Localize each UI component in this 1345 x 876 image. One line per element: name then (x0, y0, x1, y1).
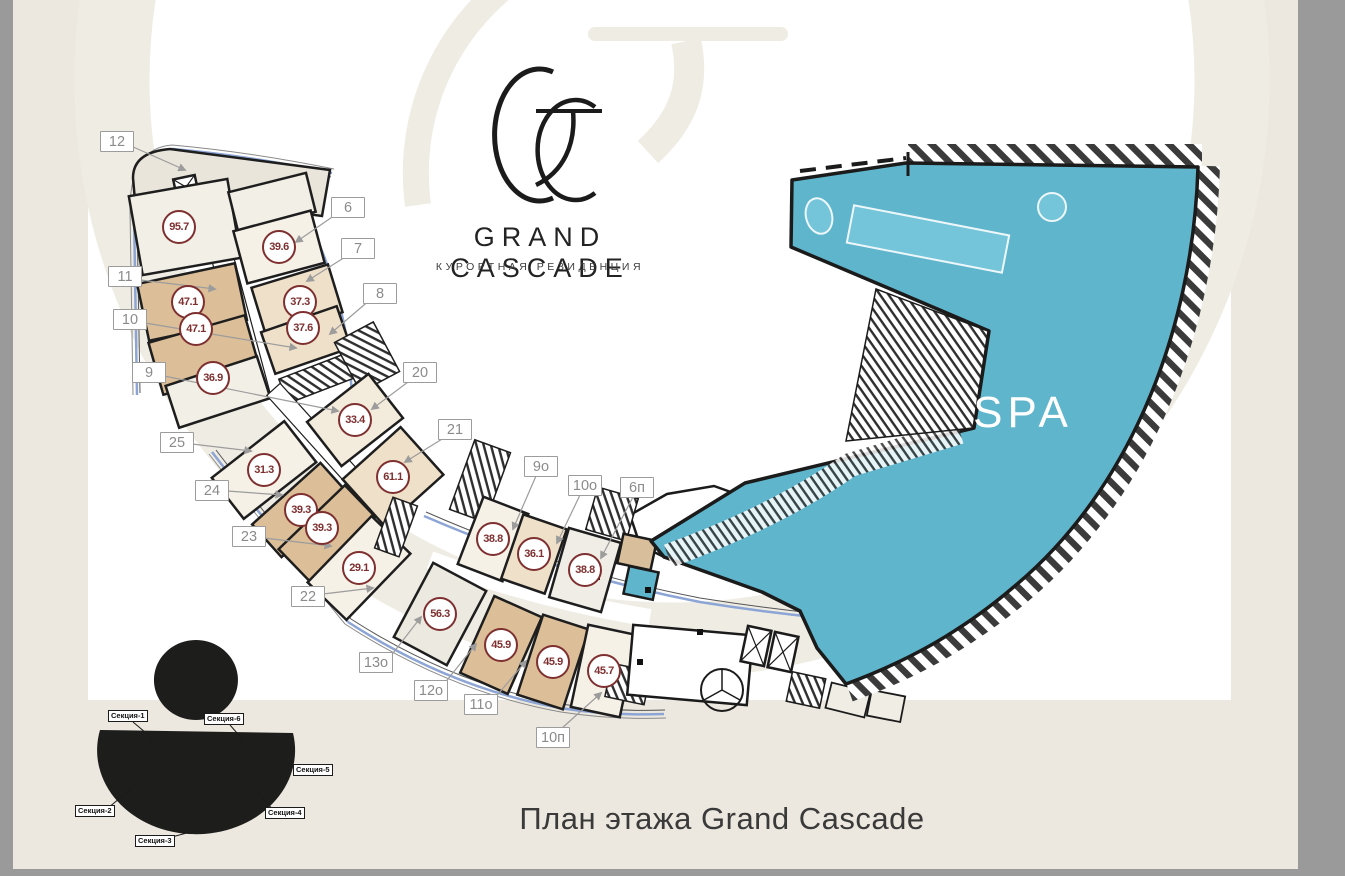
section-callout[interactable]: 21 (438, 419, 472, 440)
spa-tub-round (1038, 193, 1066, 221)
minimap-section-label[interactable]: Секция-6 (204, 713, 244, 725)
minimap-section-label[interactable]: Секция-3 (135, 835, 175, 847)
unit-area-badge[interactable]: 45.9 (484, 628, 518, 662)
minimap-section-label[interactable]: Секция-2 (75, 805, 115, 817)
section-callout[interactable]: 13о (359, 652, 393, 673)
unit-area-badge[interactable]: 39.6 (262, 230, 296, 264)
unit-area-badge[interactable]: 31.3 (247, 453, 281, 487)
unit-area-badge[interactable]: 45.9 (536, 645, 570, 679)
unit-area-badge[interactable]: 29.1 (342, 551, 376, 585)
section-callout[interactable]: 9 (132, 362, 166, 383)
section-callout[interactable]: 12о (414, 680, 448, 701)
minimap-section-label[interactable]: Секция-4 (265, 807, 305, 819)
section-callout[interactable]: 7 (341, 238, 375, 259)
unit-area-badge[interactable]: 47.1 (179, 312, 213, 346)
section-callout[interactable]: 25 (160, 432, 194, 453)
section-callout[interactable]: 8 (363, 283, 397, 304)
section-callout[interactable]: 10 (113, 309, 147, 330)
floorplan-page: GRAND CASCADE КУРОРТНАЯ РЕЗИДЕНЦИЯ SPA П… (0, 0, 1345, 876)
unit-area-badge[interactable]: 33.4 (338, 403, 372, 437)
unit-area-badge[interactable]: 39.3 (305, 511, 339, 545)
unit-area-badge[interactable]: 45.7 (587, 654, 621, 688)
unit-area-badge[interactable]: 38.8 (568, 553, 602, 587)
page-title: План этажа Grand Cascade (222, 801, 1222, 837)
section-callout[interactable]: 24 (195, 480, 229, 501)
unit-area-badge[interactable]: 36.9 (196, 361, 230, 395)
section-callout[interactable]: 22 (291, 586, 325, 607)
logo-monogram-icon (495, 69, 602, 201)
unit-area-badge[interactable]: 38.8 (476, 522, 510, 556)
unit-area-badge[interactable]: 56.3 (423, 597, 457, 631)
section-callout[interactable]: 11о (464, 694, 498, 715)
section-callout[interactable]: 11 (108, 266, 142, 287)
unit-area-badge[interactable]: 61.1 (376, 460, 410, 494)
unit-area-badge[interactable]: 37.6 (286, 311, 320, 345)
floorplan-drawing (0, 0, 1345, 876)
unit-area-badge[interactable]: 36.1 (517, 537, 551, 571)
section-callout[interactable]: 10о (568, 475, 602, 496)
section-callout[interactable]: 6 (331, 197, 365, 218)
minimap-section-label[interactable]: Секция-5 (293, 764, 333, 776)
section-callout[interactable]: 6п (620, 477, 654, 498)
logo-title: GRAND CASCADE (385, 222, 695, 284)
section-callout[interactable]: 20 (403, 362, 437, 383)
section-callout[interactable]: 10п (536, 727, 570, 748)
minimap-section-label[interactable]: Секция-1 (108, 710, 148, 722)
unit-area-badge[interactable]: 95.7 (162, 210, 196, 244)
spa-label: SPA (948, 388, 1098, 438)
section-callout[interactable]: 12 (100, 131, 134, 152)
section-callout[interactable]: 9о (524, 456, 558, 477)
wing-north (129, 149, 357, 428)
logo-subtitle: КУРОРТНАЯ РЕЗИДЕНЦИЯ (415, 261, 665, 273)
section-callout[interactable]: 23 (232, 526, 266, 547)
